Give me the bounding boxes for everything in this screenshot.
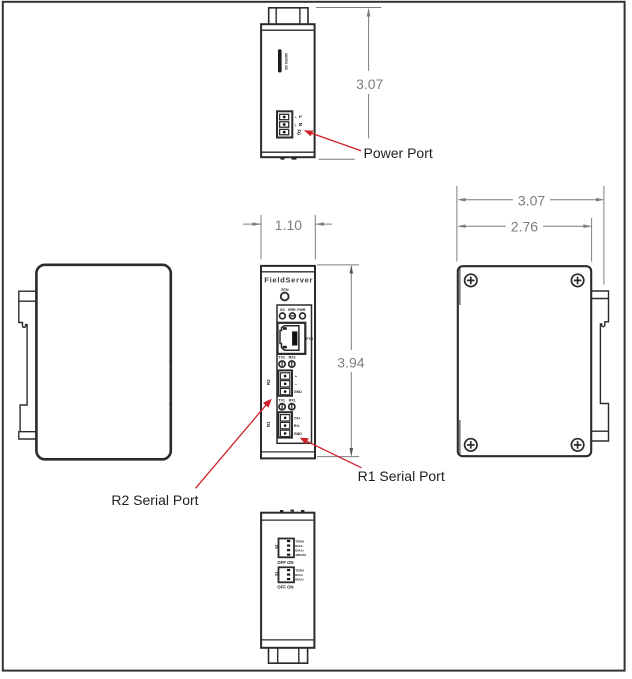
svg-text:S2: S2 <box>275 545 279 549</box>
svg-text:GND: GND <box>294 390 302 394</box>
svg-text:3.07: 3.07 <box>518 192 545 208</box>
svg-text:FieldServer: FieldServer <box>264 275 312 284</box>
svg-text:RX1: RX1 <box>289 399 296 403</box>
svg-text:TERM: TERM <box>295 539 304 543</box>
svg-text:R1: R1 <box>266 421 271 427</box>
svg-text:R2: R2 <box>266 379 271 385</box>
svg-text:BIAS+: BIAS+ <box>295 577 304 581</box>
svg-text:BIAS-: BIAS- <box>295 573 303 577</box>
svg-text:OFF ON: OFF ON <box>277 584 293 589</box>
svg-text:RX2: RX2 <box>289 356 296 360</box>
svg-text:GND: GND <box>294 432 302 436</box>
svg-text:R2 Serial Port: R2 Serial Port <box>111 492 198 508</box>
svg-text:3.07: 3.07 <box>356 76 383 92</box>
svg-text:S1: S1 <box>275 572 279 576</box>
svg-text:TERM: TERM <box>295 568 304 572</box>
svg-text:R1 Serial Port: R1 Serial Port <box>358 468 445 484</box>
svg-text:RX-: RX- <box>294 424 301 428</box>
svg-text:BIAS-: BIAS- <box>295 544 303 548</box>
svg-text:RTN: RTN <box>281 288 289 292</box>
svg-text:FG: FG <box>297 130 302 136</box>
svg-text:485/232: 485/232 <box>295 553 306 557</box>
svg-text:MICRO SD: MICRO SD <box>284 53 288 71</box>
svg-text:SS: SS <box>280 308 285 312</box>
svg-text:2.76: 2.76 <box>511 219 538 235</box>
svg-text:OFF ON: OFF ON <box>277 560 293 565</box>
svg-text:ERR: ERR <box>288 308 296 312</box>
svg-text:TX+: TX+ <box>294 416 301 420</box>
svg-text:Power Port: Power Port <box>364 145 433 161</box>
svg-text:BIAS+: BIAS+ <box>295 549 304 553</box>
svg-text:ETH: ETH <box>306 337 314 341</box>
svg-text:3.94: 3.94 <box>337 355 364 371</box>
svg-text:TX1: TX1 <box>278 399 285 403</box>
svg-text:TX2: TX2 <box>278 356 285 360</box>
svg-text:PWR: PWR <box>297 308 306 312</box>
svg-text:L: L <box>298 116 303 119</box>
svg-text:1.10: 1.10 <box>275 217 302 233</box>
